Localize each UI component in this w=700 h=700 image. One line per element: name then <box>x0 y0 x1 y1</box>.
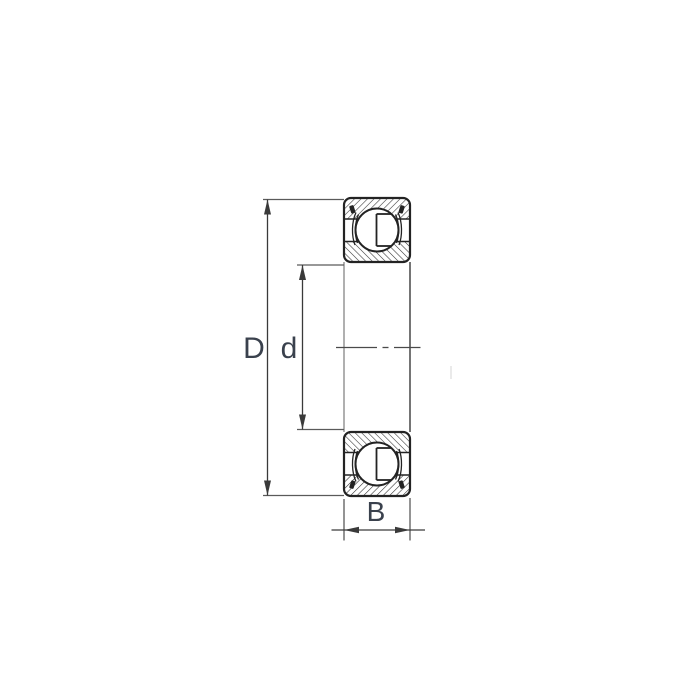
label-outer-diameter: D <box>243 332 265 365</box>
bearing-drawing-page: D d B <box>0 0 700 700</box>
background <box>0 0 700 700</box>
bearing-drawing: D d B <box>0 0 700 700</box>
label-bore-diameter: d <box>281 332 298 365</box>
label-width: B <box>367 496 386 527</box>
